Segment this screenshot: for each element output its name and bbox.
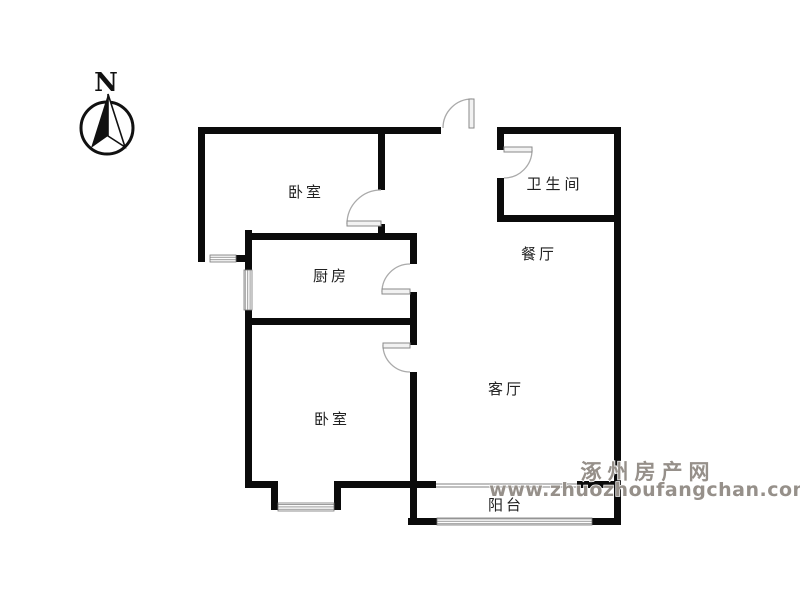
wall-livingroom-bottom-left	[410, 481, 436, 488]
room-label-bathroom: 卫生间	[526, 175, 583, 193]
window-kitchen	[244, 270, 252, 310]
room-label-living: 客厅	[488, 380, 524, 398]
room-label-kitchen: 厨房	[313, 267, 349, 285]
room-label-bedroom-bottom: 卧室	[314, 410, 350, 428]
bedroom2-door	[383, 343, 410, 372]
wall-hall-c	[410, 372, 417, 525]
wall-left-lower-b	[245, 310, 252, 488]
room-labels: 卧室 卫生间 餐厅 厨房 客厅 卧室 阳台	[288, 175, 584, 514]
entry-door	[443, 99, 474, 128]
window-left-jog	[210, 255, 236, 262]
wall-balcony-corner-right	[592, 518, 621, 525]
kitchen-door-leaf	[382, 289, 410, 294]
compass: N	[81, 68, 133, 154]
compass-needle-right-icon	[108, 94, 125, 147]
wall-bathroom-left-a	[497, 134, 504, 150]
wall-bay-step-left	[271, 481, 278, 510]
room-label-bedroom-top: 卧室	[288, 183, 324, 201]
wall-kitchen-bottom	[245, 318, 417, 325]
bedroom1-door	[347, 190, 381, 226]
entry-door-leaf	[469, 99, 474, 128]
watermark-site-url: www.zhuozhoufangchan.com	[489, 479, 800, 501]
bedroom2-door-swing-arc	[383, 345, 410, 372]
bedroom1-door-swing-arc	[347, 190, 381, 224]
bathroom-door	[504, 147, 532, 178]
bedroom2-door-leaf	[383, 343, 410, 348]
window-bedroom2-bay	[278, 503, 334, 511]
wall-hall-a	[410, 240, 417, 264]
wall-balcony-corner-left	[408, 518, 437, 525]
wall-left-jog-stub	[236, 255, 245, 262]
kitchen-door	[382, 264, 410, 294]
entry-door-swing-arc	[443, 99, 472, 128]
bedroom1-door-leaf	[347, 221, 381, 226]
floorplan-drawing: N	[0, 0, 800, 600]
wall-top-right	[497, 127, 621, 134]
wall-top-left	[198, 127, 441, 134]
wall-bedroom2-bottom-right	[334, 481, 417, 488]
bathroom-door-leaf	[504, 147, 532, 152]
wall-bathroom-bottom	[497, 215, 621, 222]
wall-kitchen-top	[245, 233, 417, 240]
kitchen-door-swing-arc	[382, 264, 410, 292]
compass-north-letter: N	[94, 68, 118, 98]
bathroom-door-swing-arc	[504, 150, 532, 178]
wall-bedroom1-right-a	[378, 134, 385, 190]
room-label-dining: 餐厅	[521, 245, 557, 263]
watermark: 涿州房产网 www.zhuozhoufangchan.com	[489, 460, 800, 501]
wall-left-upper	[198, 134, 205, 262]
window-balcony	[437, 518, 592, 525]
floorplan-canvas: N	[0, 0, 800, 600]
